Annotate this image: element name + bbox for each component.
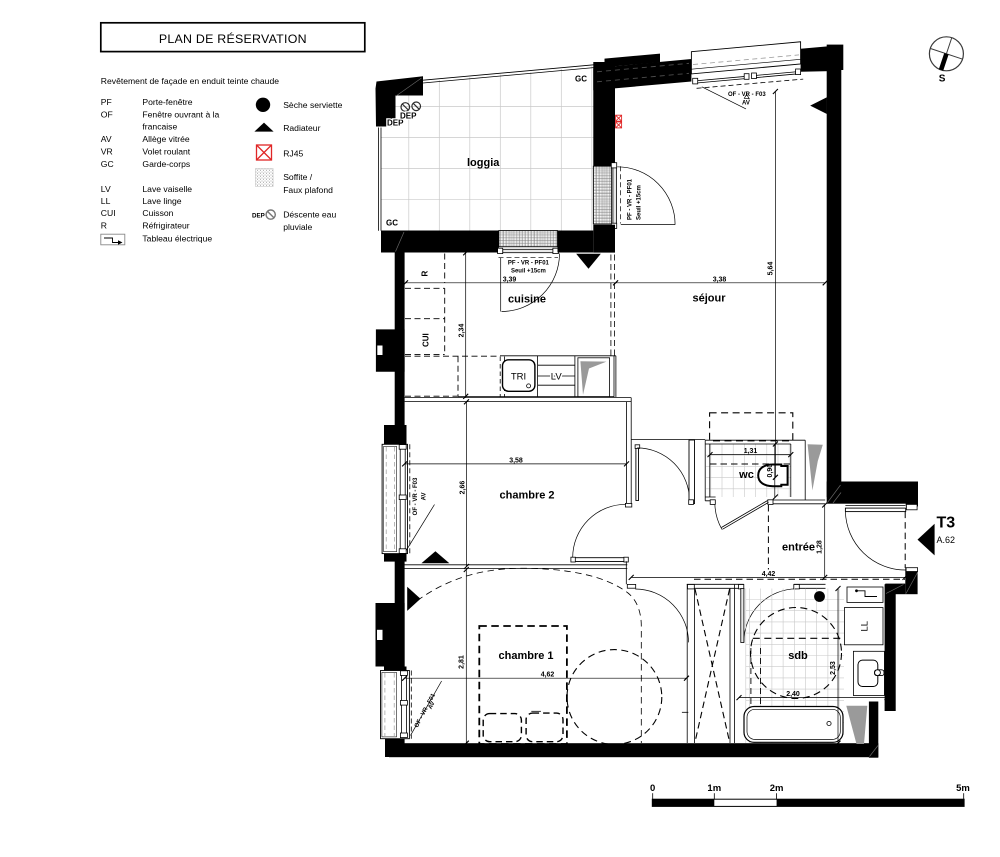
svg-text:1m: 1m <box>707 783 721 794</box>
svg-text:2m: 2m <box>770 783 784 794</box>
svg-text:entrée: entrée <box>782 542 815 554</box>
svg-text:AV: AV <box>101 134 112 144</box>
svg-text:2,40: 2,40 <box>786 691 800 698</box>
svg-text:3,39: 3,39 <box>503 276 517 283</box>
svg-text:LV: LV <box>101 184 111 194</box>
svg-text:1,31: 1,31 <box>744 448 758 455</box>
svg-text:3,58: 3,58 <box>509 457 523 464</box>
svg-text:S: S <box>939 74 946 85</box>
svg-text:4,42: 4,42 <box>762 571 776 578</box>
svg-text:2,34: 2,34 <box>459 324 466 338</box>
svg-text:A.62: A.62 <box>937 535 956 545</box>
svg-text:Lave vaiselle: Lave vaiselle <box>142 184 192 194</box>
svg-text:DEP: DEP <box>400 112 417 121</box>
svg-text:2,66: 2,66 <box>460 481 467 495</box>
svg-text:sdb: sdb <box>788 650 808 662</box>
svg-text:R: R <box>101 220 107 230</box>
svg-text:VR: VR <box>101 146 113 156</box>
svg-text:loggia: loggia <box>467 157 500 169</box>
svg-text:CUI: CUI <box>101 208 116 218</box>
svg-text:GC: GC <box>101 159 114 169</box>
svg-text:OF - VR - F03: OF - VR - F03 <box>413 477 419 515</box>
svg-text:cuisine: cuisine <box>508 294 546 306</box>
svg-text:wc: wc <box>738 469 754 481</box>
svg-text:4,62: 4,62 <box>541 672 555 679</box>
svg-text:0,90: 0,90 <box>767 464 774 478</box>
svg-text:1,28: 1,28 <box>817 540 824 554</box>
svg-text:CUI: CUI <box>422 333 431 347</box>
svg-text:AV: AV <box>742 101 750 107</box>
svg-text:PF - VR - PF01: PF - VR - PF01 <box>628 178 634 220</box>
svg-text:Volet roulant: Volet roulant <box>142 146 190 156</box>
svg-text:3,38: 3,38 <box>713 276 727 283</box>
svg-text:GC: GC <box>386 219 398 228</box>
svg-text:Radiateur: Radiateur <box>283 123 320 133</box>
svg-text:Seuil +15cm: Seuil +15cm <box>636 185 642 220</box>
svg-text:PLAN DE RÉSERVATION: PLAN DE RÉSERVATION <box>159 31 307 46</box>
svg-text:LL: LL <box>860 621 871 632</box>
svg-text:Garde-corps: Garde-corps <box>142 159 190 169</box>
svg-text:PF: PF <box>101 97 112 107</box>
svg-text:Tableau électrique: Tableau électrique <box>142 234 212 244</box>
svg-text:Allège vitrée: Allège vitrée <box>142 134 190 144</box>
svg-text:Revêtement de façade en enduit: Revêtement de façade en enduit teinte ch… <box>101 76 279 86</box>
svg-text:Réfrigirateur: Réfrigirateur <box>142 220 189 230</box>
svg-text:Porte-fenêtre: Porte-fenêtre <box>142 97 192 107</box>
svg-text:Sèche serviette: Sèche serviette <box>283 100 342 110</box>
svg-text:Faux plafond: Faux plafond <box>283 185 333 195</box>
svg-text:Fenêtre ouvrant à la: Fenêtre ouvrant à la <box>142 109 219 119</box>
svg-text:0: 0 <box>650 783 655 794</box>
svg-text:AV: AV <box>422 493 428 501</box>
svg-text:5m: 5m <box>956 783 970 794</box>
svg-text:RJ45: RJ45 <box>283 148 303 158</box>
svg-text:Lave linge: Lave linge <box>142 196 181 206</box>
svg-text:Soffite /: Soffite / <box>283 172 313 182</box>
svg-text:LL: LL <box>101 196 111 206</box>
svg-text:GC: GC <box>575 75 587 84</box>
svg-text:Seuil +15cm: Seuil +15cm <box>511 269 546 275</box>
svg-text:francaise: francaise <box>142 122 177 132</box>
svg-text:OF: OF <box>101 109 113 119</box>
svg-text:5,64: 5,64 <box>768 262 775 276</box>
svg-text:séjour: séjour <box>692 293 726 305</box>
svg-text:2,53: 2,53 <box>830 661 837 675</box>
svg-text:pluviale: pluviale <box>283 222 312 232</box>
svg-text:Cuisson: Cuisson <box>142 208 173 218</box>
svg-text:PF - VR - PF01: PF - VR - PF01 <box>508 260 550 266</box>
svg-text:LV: LV <box>551 372 563 383</box>
svg-text:TRI: TRI <box>511 372 526 383</box>
svg-text:chambre 2: chambre 2 <box>499 490 554 502</box>
svg-text:R: R <box>421 271 430 277</box>
svg-text:2,81: 2,81 <box>459 655 466 669</box>
svg-text:chambre 1: chambre 1 <box>498 650 553 662</box>
svg-text:Déscente eau: Déscente eau <box>283 210 336 220</box>
svg-text:T3: T3 <box>937 514 956 531</box>
svg-text:DEP: DEP <box>252 213 265 220</box>
